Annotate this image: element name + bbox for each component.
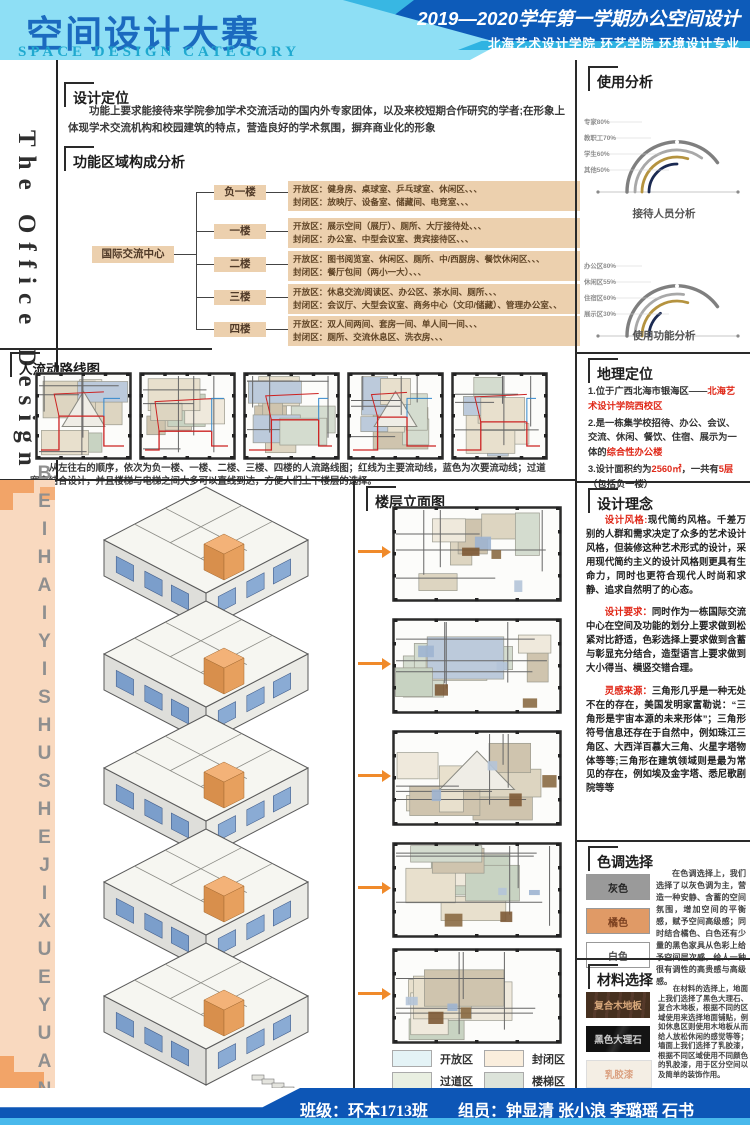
- tree-node-floor-2: 二楼: [214, 257, 266, 272]
- paragraph-lead: 设计风格:: [605, 514, 648, 525]
- tree-line: [196, 231, 214, 232]
- open-zone-text: 开放区：双人间两间、套房一间、单人间一间、、、: [293, 318, 575, 331]
- tree-node-floor-4: 四楼: [214, 322, 266, 337]
- reception-analysis-chart: 专家80%教职工70%学生60%其他50%: [582, 94, 746, 202]
- section-title-geo: 地理定位: [588, 364, 653, 384]
- tree-root-node: 国际交流中心: [92, 246, 174, 263]
- legend-label: 楼梯区: [532, 1073, 565, 1089]
- concept-paragraph: 设计要求：同时作为一栋国际交流中心在空间及功能的划分上要求做到松紧对比舒适，色彩…: [586, 605, 746, 675]
- flow-plan-3: [347, 372, 444, 460]
- tree-trunk-line: [196, 192, 197, 330]
- tree-line: [266, 264, 288, 265]
- poster: 空间设计大赛 SPACE DESIGN CATEGORY 2019—2020学年…: [0, 0, 750, 1125]
- palette-swatch-gray: 灰色: [586, 874, 650, 900]
- svg-text:办公区80%: 办公区80%: [584, 261, 616, 270]
- section-divider: [0, 348, 212, 350]
- legend-label: 过道区: [440, 1073, 473, 1089]
- tree-line: [266, 192, 288, 193]
- members-label: 组员：钟显清 张小浪 李璐瑶 石书: [458, 1097, 694, 1121]
- tree-detail-4: 开放区：双人间两间、套房一间、单人间一间、、、 封闭区：厕所、交流休息区、洗衣房…: [288, 316, 580, 346]
- materials-body: 在材料的选择上，地面上我们选择了黑色大理石、复合木地板，根据不同的区域使用来选择…: [658, 984, 748, 1079]
- legend-label: 开放区: [440, 1051, 473, 1067]
- section-title-function: 功能区域构成分析: [64, 152, 185, 172]
- tree-line: [196, 329, 214, 330]
- flow-plan-4: [451, 372, 548, 460]
- header-banner: 空间设计大赛 SPACE DESIGN CATEGORY 2019—2020学年…: [0, 0, 750, 60]
- paragraph-body: 三角形几乎是一种无处不在的存在，美国发明家富勒说：“三角形是宇宙本源的未来形体”…: [586, 685, 746, 793]
- column-divider: [353, 479, 355, 1090]
- header-term-line: 2019—2020学年第一学期办公空间设计: [417, 5, 740, 31]
- paragraph-body: 现代简约风格。千差万别的人群和需求决定了众多的艺术设计风格，但装修这种艺术形式的…: [586, 514, 746, 595]
- arrow-right-icon: [358, 992, 382, 995]
- tree-node-floor-3: 三楼: [214, 290, 266, 305]
- legend-swatch-corridor: [392, 1072, 432, 1089]
- tree-line: [196, 264, 214, 265]
- arrow-right-icon: [358, 550, 382, 553]
- arrow-right-icon: [358, 662, 382, 665]
- chart-caption: 接待人员分析: [582, 206, 746, 221]
- legend-swatch-closed: [484, 1050, 524, 1067]
- material-swatch-latex: 乳胶漆: [586, 1060, 652, 1088]
- material-swatch-wood: 复合木地板: [586, 992, 650, 1018]
- svg-text:其他50%: 其他50%: [584, 165, 610, 174]
- paragraph-lead: 设计要求：: [605, 606, 652, 617]
- footer-bar: 班级：环本1713班 组员：钟显清 张小浪 李璐瑶 石书: [0, 1088, 750, 1125]
- elevation-plan-3: [392, 730, 562, 826]
- palette-swatch-orange: 橘色: [586, 908, 650, 934]
- tree-line: [174, 254, 196, 255]
- svg-text:学生60%: 学生60%: [584, 149, 610, 158]
- section-title-usage: 使用分析: [588, 72, 653, 92]
- concept-paragraphs: 设计风格:现代简约风格。千差万别的人群和需求决定了众多的艺术设计风格，但装修这种…: [586, 513, 746, 804]
- tree-node-floor-1: 一楼: [214, 224, 266, 239]
- section-divider: [575, 352, 750, 354]
- elevation-plan-2: [392, 618, 562, 714]
- arrow-right-icon: [358, 774, 382, 777]
- section-title-palette: 色调选择: [588, 852, 653, 872]
- tree-detail-1: 开放区：展示空间（展厅）、厕所、大厅接待处、、、 封闭区：办公室、中型会议室、贵…: [288, 218, 580, 248]
- tree-detail-2: 开放区：图书阅览室、休闲区、厕所、中/西厨房、餐饮休闲区、、、 封闭区：餐厅包间…: [288, 251, 580, 281]
- section-title-concept: 设计理念: [588, 494, 653, 514]
- svg-text:教职工70%: 教职工70%: [584, 133, 616, 142]
- svg-text:休闲区55%: 休闲区55%: [583, 277, 616, 286]
- closed-zone-text: 封闭区：会议厅、大型会议室、商务中心（文印/储藏）、管理办公室、、: [293, 299, 575, 312]
- concept-paragraph: 灵感来源：三角形几乎是一种无处不在的存在，美国发明家富勒说：“三角形是宇宙本源的…: [586, 684, 746, 795]
- header-school-line: 北海艺术设计学院 环艺学院 环境设计专业: [488, 33, 740, 52]
- exploded-axonometric-drawing: [58, 482, 350, 1088]
- tree-line: [196, 192, 214, 193]
- closed-zone-text: 封闭区：餐厅包间（两小一大）、、、: [293, 266, 575, 279]
- arrow-right-icon: [358, 886, 382, 889]
- vertical-school-pinyin: BEIHAIYISHUSHEJIXUEYUAN: [0, 497, 55, 1072]
- closed-zone-text: 封闭区：放映厅、设备室、储藏间、电竞室、、、: [293, 196, 575, 209]
- tree-line: [266, 297, 288, 298]
- svg-text:专家80%: 专家80%: [584, 117, 610, 126]
- section-title-materials: 材料选择: [588, 970, 653, 990]
- open-zone-text: 开放区：展示空间（展厅）、厕所、大厅接待处、、、: [293, 220, 575, 233]
- geo-item: 1.位于广西北海市银海区——北海艺术设计学院西校区: [588, 384, 744, 414]
- tree-node-floor-b1: 负一楼: [214, 185, 266, 200]
- elevation-plan-1: [392, 506, 562, 602]
- section-divider: [575, 958, 750, 960]
- closed-zone-text: 封闭区：厕所、交流休息区、洗衣房、、、: [293, 331, 575, 344]
- flow-plan-b1: [35, 372, 132, 460]
- class-label: 班级：环本1713班: [300, 1097, 428, 1121]
- concept-paragraph: 设计风格:现代简约风格。千差万别的人群和需求决定了众多的艺术设计风格，但装修这种…: [586, 513, 746, 596]
- tree-detail-b1: 开放区：健身房、桌球室、乒乓球室、休闲区、、、 封闭区：放映厅、设备室、储藏间、…: [288, 181, 580, 211]
- geo-item: 2.是一栋集学校招待、办公、会议、交流、休闲、餐饮、住宿、展示为一体的综合性办公…: [588, 416, 744, 460]
- legend-swatch-open: [392, 1050, 432, 1067]
- column-divider: [575, 60, 577, 1090]
- open-zone-text: 开放区：休息交流/阅读区、办公区、茶水间、厕所、、、: [293, 286, 575, 299]
- tree-line: [266, 231, 288, 232]
- legend-swatch-stairs: [484, 1072, 524, 1089]
- legend-label: 封闭区: [532, 1051, 565, 1067]
- palette-body: 在色调选择上，我们选择了以灰色调为主，营造一种安静、含蓄的空间氛围，增加空间的平…: [656, 868, 746, 988]
- closed-zone-text: 封闭区：办公室、中型会议室、贵宾接待区、、、: [293, 233, 575, 246]
- open-zone-text: 开放区：健身房、桌球室、乒乓球室、休闲区、、、: [293, 183, 575, 196]
- flow-plan-2: [243, 372, 340, 460]
- flow-plan-1: [139, 372, 236, 460]
- geo-list: 1.位于广西北海市银海区——北海艺术设计学院西校区 2.是一栋集学校招待、办公、…: [588, 384, 744, 494]
- section-divider: [0, 479, 576, 481]
- section-divider: [575, 840, 750, 842]
- tree-detail-3: 开放区：休息交流/阅读区、办公区、茶水间、厕所、、、 封闭区：会议厅、大型会议室…: [288, 284, 580, 314]
- positioning-body: 功能上要求能接待来学院参加学术交流活动的国内外专家团体，以及来校短期合作研究的学…: [68, 103, 568, 137]
- elevation-plan-4: [392, 842, 562, 938]
- material-swatch-marble: 黑色大理石: [586, 1026, 650, 1052]
- open-zone-text: 开放区：图书阅览室、休闲区、厕所、中/西厨房、餐饮休闲区、、、: [293, 253, 575, 266]
- poster-title-en: SPACE DESIGN CATEGORY: [18, 44, 300, 61]
- section-divider: [575, 481, 750, 483]
- svg-text:住宿区60%: 住宿区60%: [584, 293, 616, 302]
- tree-line: [266, 329, 288, 330]
- elevation-plan-5: [392, 948, 562, 1044]
- svg-text:展示区30%: 展示区30%: [584, 309, 616, 318]
- tree-line: [196, 297, 214, 298]
- chart-caption: 使用功能分析: [582, 328, 746, 343]
- paragraph-lead: 灵感来源：: [605, 685, 652, 696]
